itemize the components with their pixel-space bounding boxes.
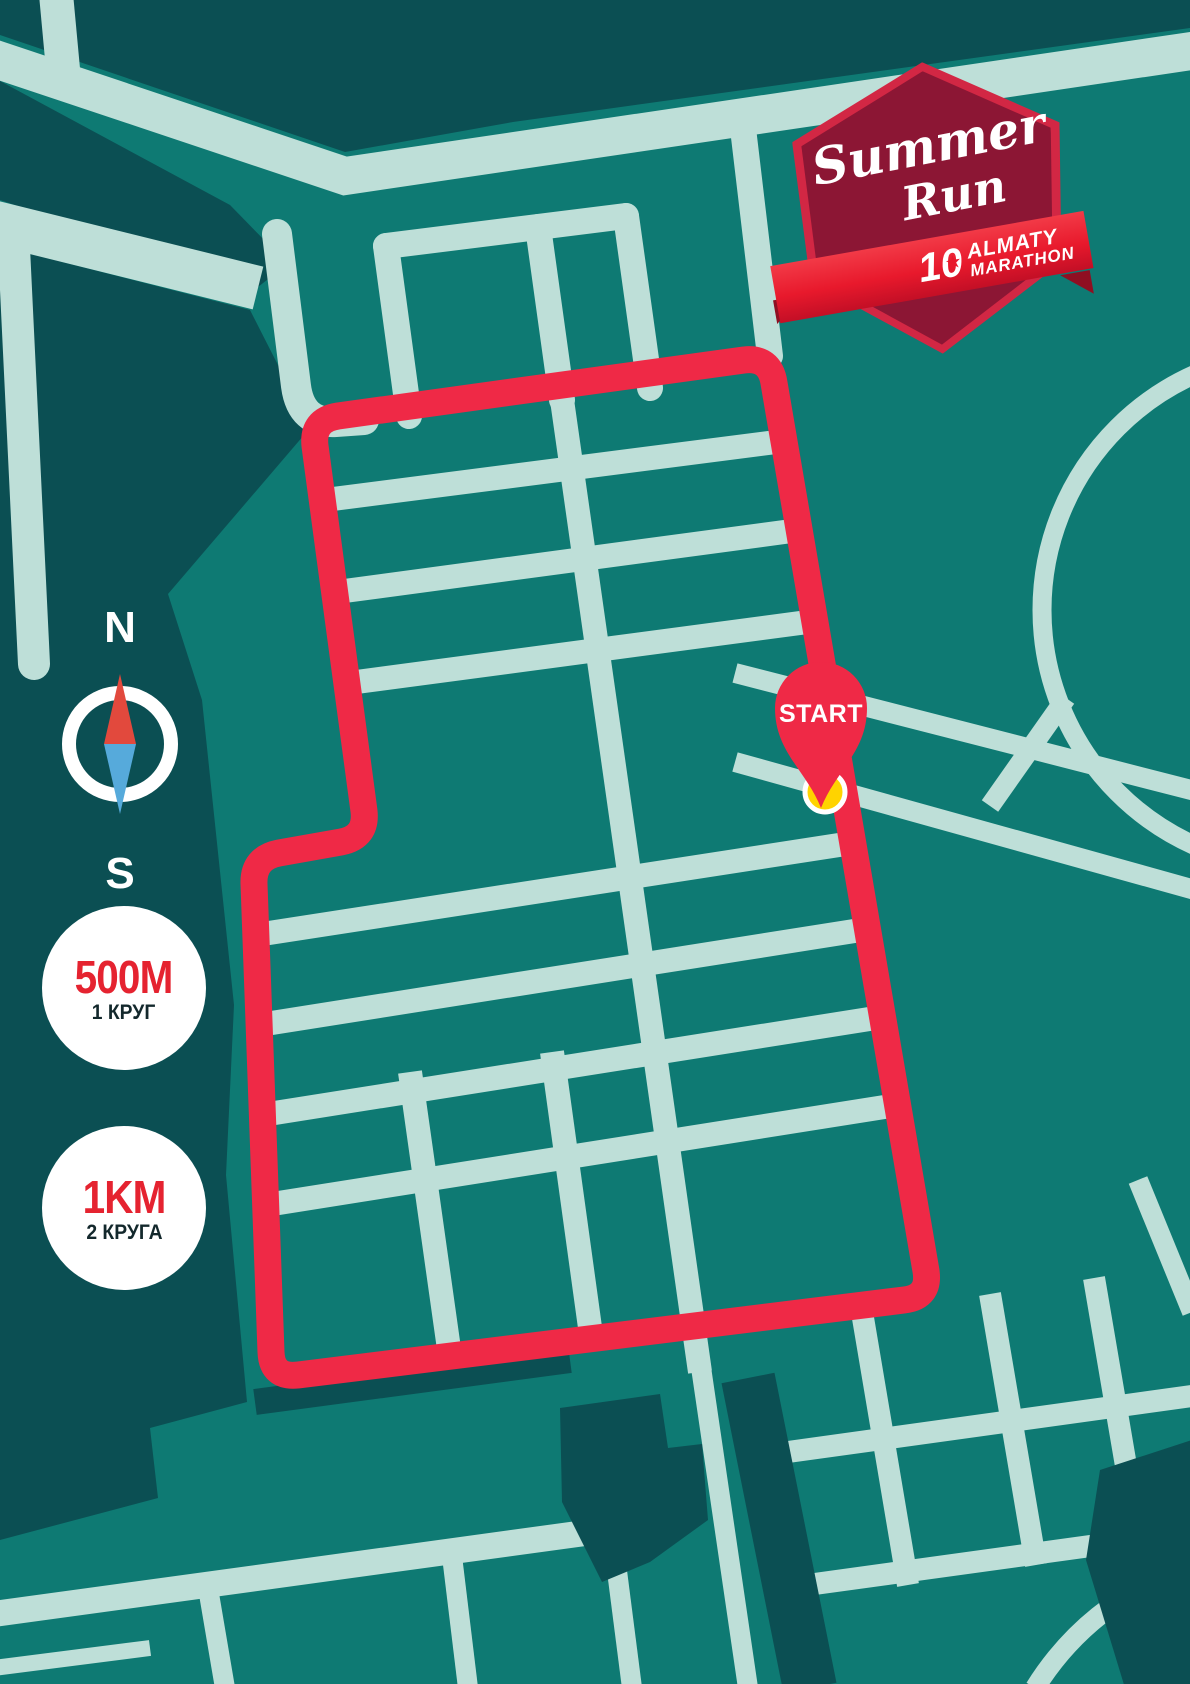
badge-laps-label: 1 КРУГ (92, 1002, 156, 1023)
dark-shadow-street-vertical (748, 1378, 810, 1684)
race-route (254, 360, 927, 1376)
star-icon: ★ (945, 254, 962, 272)
building-blob-1 (560, 1394, 708, 1582)
badge-distance-label: 1KM (83, 1174, 166, 1220)
building-blob-2 (1086, 1440, 1190, 1684)
course-map-poster: START N S 500M 1 КРУГ 1KM 2 КРУГА Summer… (0, 0, 1190, 1684)
farleft-vertical-street (14, 248, 34, 664)
organizer-name: ALMATY MARATHON (965, 224, 1076, 280)
badge-laps-label: 2 КРУГА (86, 1222, 162, 1243)
topleft-connector-street (56, 0, 64, 80)
ribbon-fold-right (1060, 270, 1094, 299)
compass-north-label: N (104, 603, 136, 652)
badge-distance-label: 500M (75, 954, 173, 1000)
curved-deadend-street (277, 234, 364, 422)
right-edge-road (1138, 1180, 1190, 1312)
compass-south-label: S (105, 849, 134, 898)
distance-badge-1km: 1KM 2 КРУГА (42, 1126, 206, 1290)
event-logo: Summer Run 10 ★ ALMATY MARATHON (772, 46, 1092, 377)
edition-number: 10 ★ (915, 242, 966, 289)
start-label: START (779, 700, 863, 728)
distance-badge-500m: 500M 1 КРУГ (42, 906, 206, 1070)
